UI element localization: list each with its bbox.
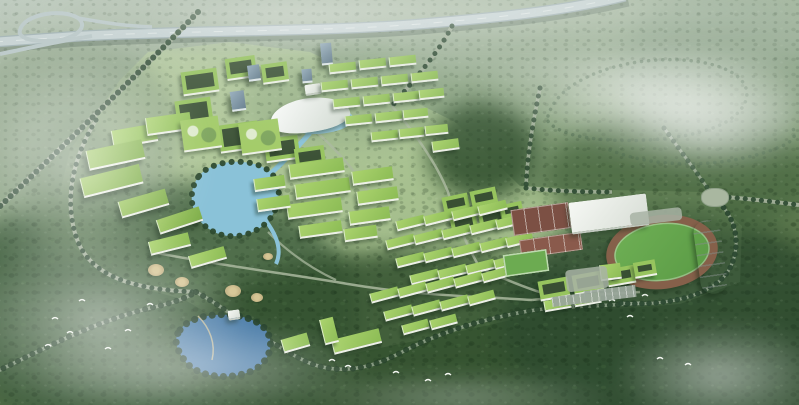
fog-layer	[0, 0, 799, 405]
campus-aerial-rendering	[0, 0, 799, 405]
fog-patch	[540, 54, 799, 164]
fog-patch	[610, 320, 799, 405]
